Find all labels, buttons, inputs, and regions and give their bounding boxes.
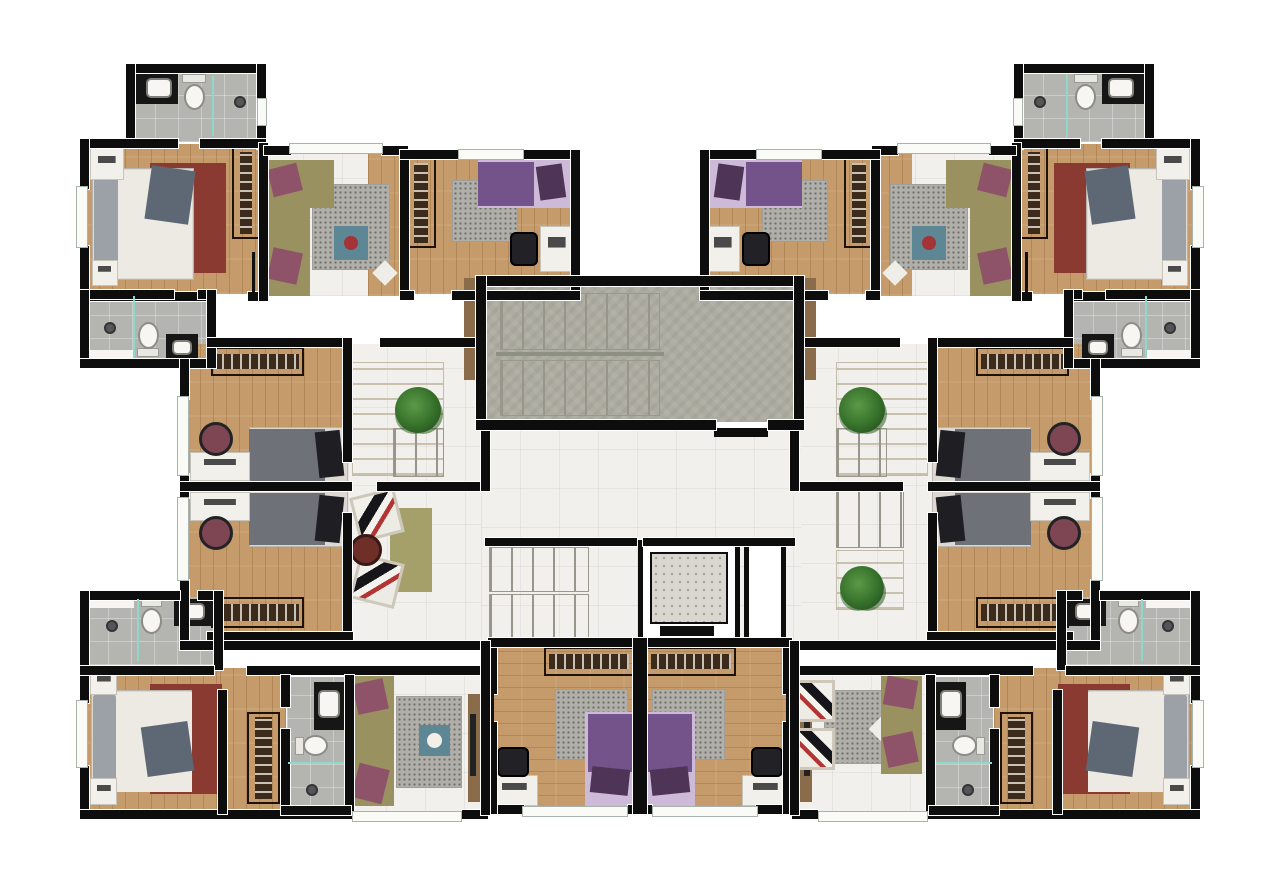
wall bbox=[343, 513, 352, 641]
wardrobe-master-tl bbox=[232, 147, 260, 239]
wall bbox=[126, 64, 135, 148]
window-mirror bbox=[818, 811, 928, 822]
wall-mirror bbox=[792, 641, 1100, 650]
bath-bc-toilet bbox=[303, 735, 328, 756]
wall bbox=[126, 64, 266, 73]
chair-bedmid-up-mirror bbox=[1047, 422, 1081, 456]
bed-master-bl-pillows bbox=[93, 694, 116, 788]
wall-mirror bbox=[866, 291, 880, 300]
shower-glass-ml-mirror bbox=[1145, 296, 1147, 358]
bath-bl-tank bbox=[141, 599, 162, 607]
window bbox=[76, 186, 88, 248]
window bbox=[289, 143, 383, 154]
wall bbox=[218, 690, 227, 814]
bath-bc-tank-mirror bbox=[976, 737, 985, 755]
wall-mirror bbox=[1091, 359, 1100, 399]
wall-mirror bbox=[790, 641, 799, 815]
window bbox=[458, 149, 524, 160]
wall bbox=[481, 427, 490, 491]
desk-bedmid-up bbox=[190, 452, 250, 481]
wall-mirror bbox=[933, 338, 1073, 347]
window-mirror bbox=[1091, 396, 1103, 476]
wall-mirror bbox=[795, 338, 900, 347]
door-leaf-master-tl-mirror bbox=[1025, 252, 1028, 292]
wall bbox=[259, 143, 268, 301]
wall bbox=[264, 146, 291, 155]
bath-tl-sink-mirror bbox=[1108, 78, 1134, 98]
bed-master-tl-pillows-mirror bbox=[1162, 172, 1186, 274]
hallstairs-low-a bbox=[489, 547, 589, 592]
wall bbox=[80, 290, 89, 368]
wall bbox=[345, 675, 354, 811]
round-side-table bbox=[350, 534, 382, 566]
wall-mirror bbox=[790, 427, 799, 491]
window bbox=[352, 811, 462, 822]
wall-mirror bbox=[989, 146, 1016, 155]
wall-bedb-divider bbox=[633, 638, 647, 814]
wardrobe-bedmid-up bbox=[211, 347, 304, 376]
wall-mirror bbox=[1102, 139, 1200, 148]
bath-ml-shower-head bbox=[104, 322, 116, 334]
wall-stairwell-bottom2 bbox=[768, 420, 804, 430]
wall bbox=[180, 359, 189, 399]
bath-tl-tank-mirror bbox=[1074, 74, 1098, 83]
wardrobe-hall-bl bbox=[247, 712, 280, 804]
bath-ml-tank-mirror bbox=[1121, 348, 1143, 357]
wardrobe-bedmid-low-mirror bbox=[976, 597, 1069, 628]
window-mirror bbox=[1013, 98, 1023, 126]
plant-right-lower bbox=[840, 566, 884, 610]
wall bbox=[400, 150, 409, 300]
window-mirror bbox=[1192, 700, 1204, 768]
bath-bl-shower-head-mirror bbox=[1162, 620, 1174, 632]
wardrobe-bedb-mirror bbox=[646, 647, 736, 676]
bath-bc-sink-mirror bbox=[940, 690, 962, 718]
wall-mirror bbox=[1064, 359, 1200, 368]
wall-mirror bbox=[1091, 580, 1100, 650]
chair-bedmid-low bbox=[199, 516, 233, 550]
wall bbox=[488, 638, 633, 647]
wall-mirror bbox=[927, 632, 1073, 641]
bath-bl-toilet-mirror bbox=[1118, 608, 1139, 634]
desk-master-tl bbox=[90, 148, 124, 180]
wall bbox=[180, 641, 488, 650]
coffee-table-tl-flowers-mirror bbox=[922, 236, 936, 250]
bath-bl-bench bbox=[90, 599, 134, 608]
plant-stair-hall-mirror bbox=[839, 387, 885, 433]
wall bbox=[481, 641, 490, 815]
wall-mirror bbox=[929, 806, 999, 815]
stair-landing-line bbox=[496, 352, 664, 356]
tv-line bbox=[470, 714, 476, 776]
shower-glass-bc bbox=[288, 762, 344, 764]
door-leaf-bedb bbox=[491, 692, 494, 722]
bed-master-bl-blanket-mirror bbox=[1086, 721, 1140, 777]
bedmid-up-duvet-mirror bbox=[955, 429, 1031, 481]
bed2-pillow-mirror bbox=[714, 163, 744, 200]
wall bbox=[180, 580, 189, 650]
wall-mirror bbox=[990, 675, 999, 707]
bath-ml-sink-mirror bbox=[1088, 340, 1108, 355]
wall bbox=[400, 150, 458, 159]
nightstand-master-tl-mirror bbox=[1162, 260, 1188, 286]
bath-bl-shower-head bbox=[106, 620, 118, 632]
chair-bed2-mirror bbox=[742, 232, 770, 266]
sofa-tl-chaise bbox=[310, 160, 334, 208]
elevator-door-bar bbox=[660, 626, 714, 636]
bath-bc-toilet-mirror bbox=[952, 735, 977, 756]
wall bbox=[207, 632, 353, 641]
bed-master-bl-pillows-mirror bbox=[1164, 694, 1187, 788]
bath-tl-toilet bbox=[184, 84, 205, 110]
stairwell-door-mat bbox=[714, 428, 768, 437]
coffee-table-bl-flowers bbox=[427, 733, 442, 748]
coffee-table-tl-flowers bbox=[344, 236, 358, 250]
bath-tl-toilet-mirror bbox=[1075, 84, 1096, 110]
shower-glass-bc-mirror bbox=[936, 762, 992, 764]
bed2-pillow bbox=[536, 163, 566, 200]
chair-bedb-mirror bbox=[751, 747, 783, 777]
desk-bedb bbox=[491, 775, 538, 806]
wall-mirror bbox=[792, 666, 1033, 675]
wall bbox=[207, 290, 216, 368]
wall-mirror bbox=[1106, 290, 1200, 299]
shower-glass-tl-mirror bbox=[1066, 76, 1068, 136]
wardrobe-bedmid-low bbox=[211, 597, 304, 628]
wall bbox=[207, 338, 347, 347]
bath-ml-tank bbox=[137, 348, 159, 357]
bedmid-low-duvet bbox=[249, 493, 325, 545]
elevator-floor bbox=[650, 552, 728, 624]
wall bbox=[80, 359, 216, 368]
bath-ml-sink bbox=[172, 340, 192, 355]
shower-glass-bl bbox=[137, 599, 139, 661]
wardrobe-master-tl-mirror bbox=[1020, 147, 1048, 239]
wall-mirror bbox=[1053, 690, 1062, 814]
bedb-duvet-mirror bbox=[648, 714, 692, 772]
window-mirror bbox=[1192, 186, 1204, 248]
wall-mirror bbox=[1191, 290, 1200, 368]
bedb-duvet bbox=[588, 714, 632, 772]
desk-bed2 bbox=[540, 226, 574, 272]
wall-mirror bbox=[928, 338, 937, 462]
bath-ml-shower-head-mirror bbox=[1164, 322, 1176, 334]
stair-flight-upper bbox=[500, 293, 660, 350]
bedmid-up-pillow-mirror bbox=[936, 430, 966, 478]
wall bbox=[247, 666, 488, 675]
wall bbox=[180, 482, 352, 491]
bed-master-bl-blanket bbox=[141, 721, 195, 777]
wardrobe-bed2-mirror bbox=[844, 158, 874, 248]
service-shaft bbox=[744, 540, 786, 644]
window bbox=[177, 497, 189, 581]
hallstairs-low-b bbox=[489, 594, 589, 638]
bath-bl-toilet bbox=[141, 608, 162, 634]
bath-bl-tank-mirror bbox=[1118, 599, 1139, 607]
wall-mirror bbox=[928, 482, 1100, 491]
bed-master-tl-pillows bbox=[94, 172, 118, 274]
wall-mirror bbox=[990, 729, 999, 811]
chair-bedmid-low-mirror bbox=[1047, 516, 1081, 550]
bed2-duvet bbox=[478, 162, 534, 206]
wall-mirror bbox=[926, 675, 935, 811]
bedmid-low-pillow bbox=[315, 495, 345, 543]
wall bbox=[377, 482, 481, 491]
floor-plan bbox=[0, 0, 1280, 889]
window-mirror bbox=[1091, 497, 1103, 581]
wall-mirror bbox=[643, 538, 795, 546]
wall bbox=[400, 291, 414, 300]
bath-bc-sink bbox=[318, 690, 340, 718]
armchair-br-1 bbox=[793, 680, 835, 722]
bed-master-tl-blanket-mirror bbox=[1084, 165, 1135, 225]
window bbox=[257, 98, 267, 126]
wall-stairwell-right bbox=[794, 276, 804, 430]
wall-mirror bbox=[1191, 139, 1200, 189]
door-leaf-master-tl bbox=[252, 252, 255, 292]
shower-glass-ml bbox=[133, 296, 135, 358]
bath-bl-bench-mirror bbox=[1146, 599, 1190, 608]
bath-tl-shower-head-mirror bbox=[1034, 96, 1046, 108]
nightstand-master-tl bbox=[92, 260, 118, 286]
bath-tl-shower-head bbox=[234, 96, 246, 108]
wall-mirror bbox=[871, 150, 880, 300]
sofa-br-cushion-1 bbox=[883, 676, 919, 710]
wall bbox=[343, 338, 352, 462]
wall-stairwell-left bbox=[476, 276, 486, 430]
shower-glass-bl-mirror bbox=[1141, 599, 1143, 661]
wall bbox=[485, 538, 637, 546]
wall bbox=[80, 591, 89, 703]
door-leaf-bedb-mirror bbox=[786, 692, 789, 722]
bath-ml-toilet bbox=[138, 322, 159, 349]
wall-mirror bbox=[1014, 64, 1154, 73]
shower-glass-tl bbox=[212, 76, 214, 136]
armchair-br-2 bbox=[793, 728, 835, 770]
wardrobe-bedmid-up-mirror bbox=[976, 347, 1069, 376]
window-mirror bbox=[756, 149, 822, 160]
bed2-duvet-mirror bbox=[746, 162, 802, 206]
bath-tl-sink bbox=[146, 78, 172, 98]
wall bbox=[214, 591, 223, 670]
window-mirror bbox=[897, 143, 991, 154]
wall-mirror bbox=[700, 291, 828, 300]
hallstairs-landing-mirror bbox=[836, 428, 887, 477]
wall bbox=[281, 675, 290, 707]
wall-stairwell-bottom bbox=[476, 420, 716, 430]
sofa-bl-cushion-1 bbox=[352, 678, 389, 715]
wall-mirror bbox=[1191, 591, 1200, 703]
desk-master-tl-mirror bbox=[1156, 148, 1190, 180]
bath-bc-shower-head-mirror bbox=[962, 784, 974, 796]
wall bbox=[80, 290, 174, 299]
bedmid-up-duvet bbox=[249, 429, 325, 481]
wardrobe-bedb bbox=[544, 647, 634, 676]
nightstand-master-bl-2 bbox=[90, 778, 117, 805]
desk-bedmid-up-mirror bbox=[1030, 452, 1090, 481]
chair-bedmid-up bbox=[199, 422, 233, 456]
wall-mirror bbox=[647, 638, 792, 647]
sofa-br-cushion-2 bbox=[882, 731, 919, 768]
bath-ml-toilet-mirror bbox=[1121, 322, 1142, 349]
wall bbox=[80, 591, 180, 600]
wall-mirror bbox=[1100, 591, 1200, 600]
stairs-right-lower-a bbox=[836, 490, 904, 548]
sofa-tl-cushion-2-mirror bbox=[977, 247, 1013, 285]
chair-bedb bbox=[497, 747, 529, 777]
wall bbox=[380, 338, 485, 347]
stair-flight-lower bbox=[500, 360, 660, 416]
wall bbox=[80, 666, 214, 675]
bath-tl-tank bbox=[182, 74, 206, 83]
wall bbox=[80, 139, 89, 189]
plant-stair-hall bbox=[395, 387, 441, 433]
wall-mirror bbox=[1145, 64, 1154, 148]
wall-stairwell-top bbox=[476, 276, 804, 286]
wall-mirror bbox=[1012, 143, 1021, 301]
desk-bed2-mirror bbox=[706, 226, 740, 272]
chair-bed2 bbox=[510, 232, 538, 266]
bedb-pillow bbox=[590, 766, 631, 796]
wall bbox=[452, 291, 580, 300]
window bbox=[177, 396, 189, 476]
wall-mirror bbox=[1066, 666, 1200, 675]
hallstairs-landing bbox=[393, 428, 444, 477]
bedb-pillow-mirror bbox=[650, 766, 691, 796]
wall-mirror bbox=[1057, 591, 1066, 670]
wall bbox=[281, 729, 290, 811]
sofa-tl-chaise-mirror bbox=[946, 160, 970, 208]
wall-mirror bbox=[1014, 139, 1080, 148]
wall bbox=[200, 139, 266, 148]
window bbox=[522, 806, 628, 817]
bedmid-low-pillow-mirror bbox=[936, 495, 966, 543]
wall bbox=[80, 139, 178, 148]
wardrobe-bed2 bbox=[406, 158, 436, 248]
bedmid-up-pillow bbox=[315, 430, 345, 478]
wall-mirror bbox=[1064, 290, 1073, 368]
wall-mirror bbox=[928, 513, 937, 641]
wall-mirror bbox=[822, 150, 880, 159]
wall-mirror bbox=[799, 482, 903, 491]
bath-bc-shower-head bbox=[306, 784, 318, 796]
wall bbox=[281, 806, 351, 815]
bedmid-low-duvet-mirror bbox=[955, 493, 1031, 545]
desk-bedb-mirror bbox=[742, 775, 789, 806]
window-mirror bbox=[652, 806, 758, 817]
window bbox=[76, 700, 88, 768]
bed-master-tl-blanket bbox=[144, 165, 195, 225]
nightstand-master-bl-2-mirror bbox=[1163, 778, 1190, 805]
wardrobe-hall-bl-mirror bbox=[1000, 712, 1033, 804]
